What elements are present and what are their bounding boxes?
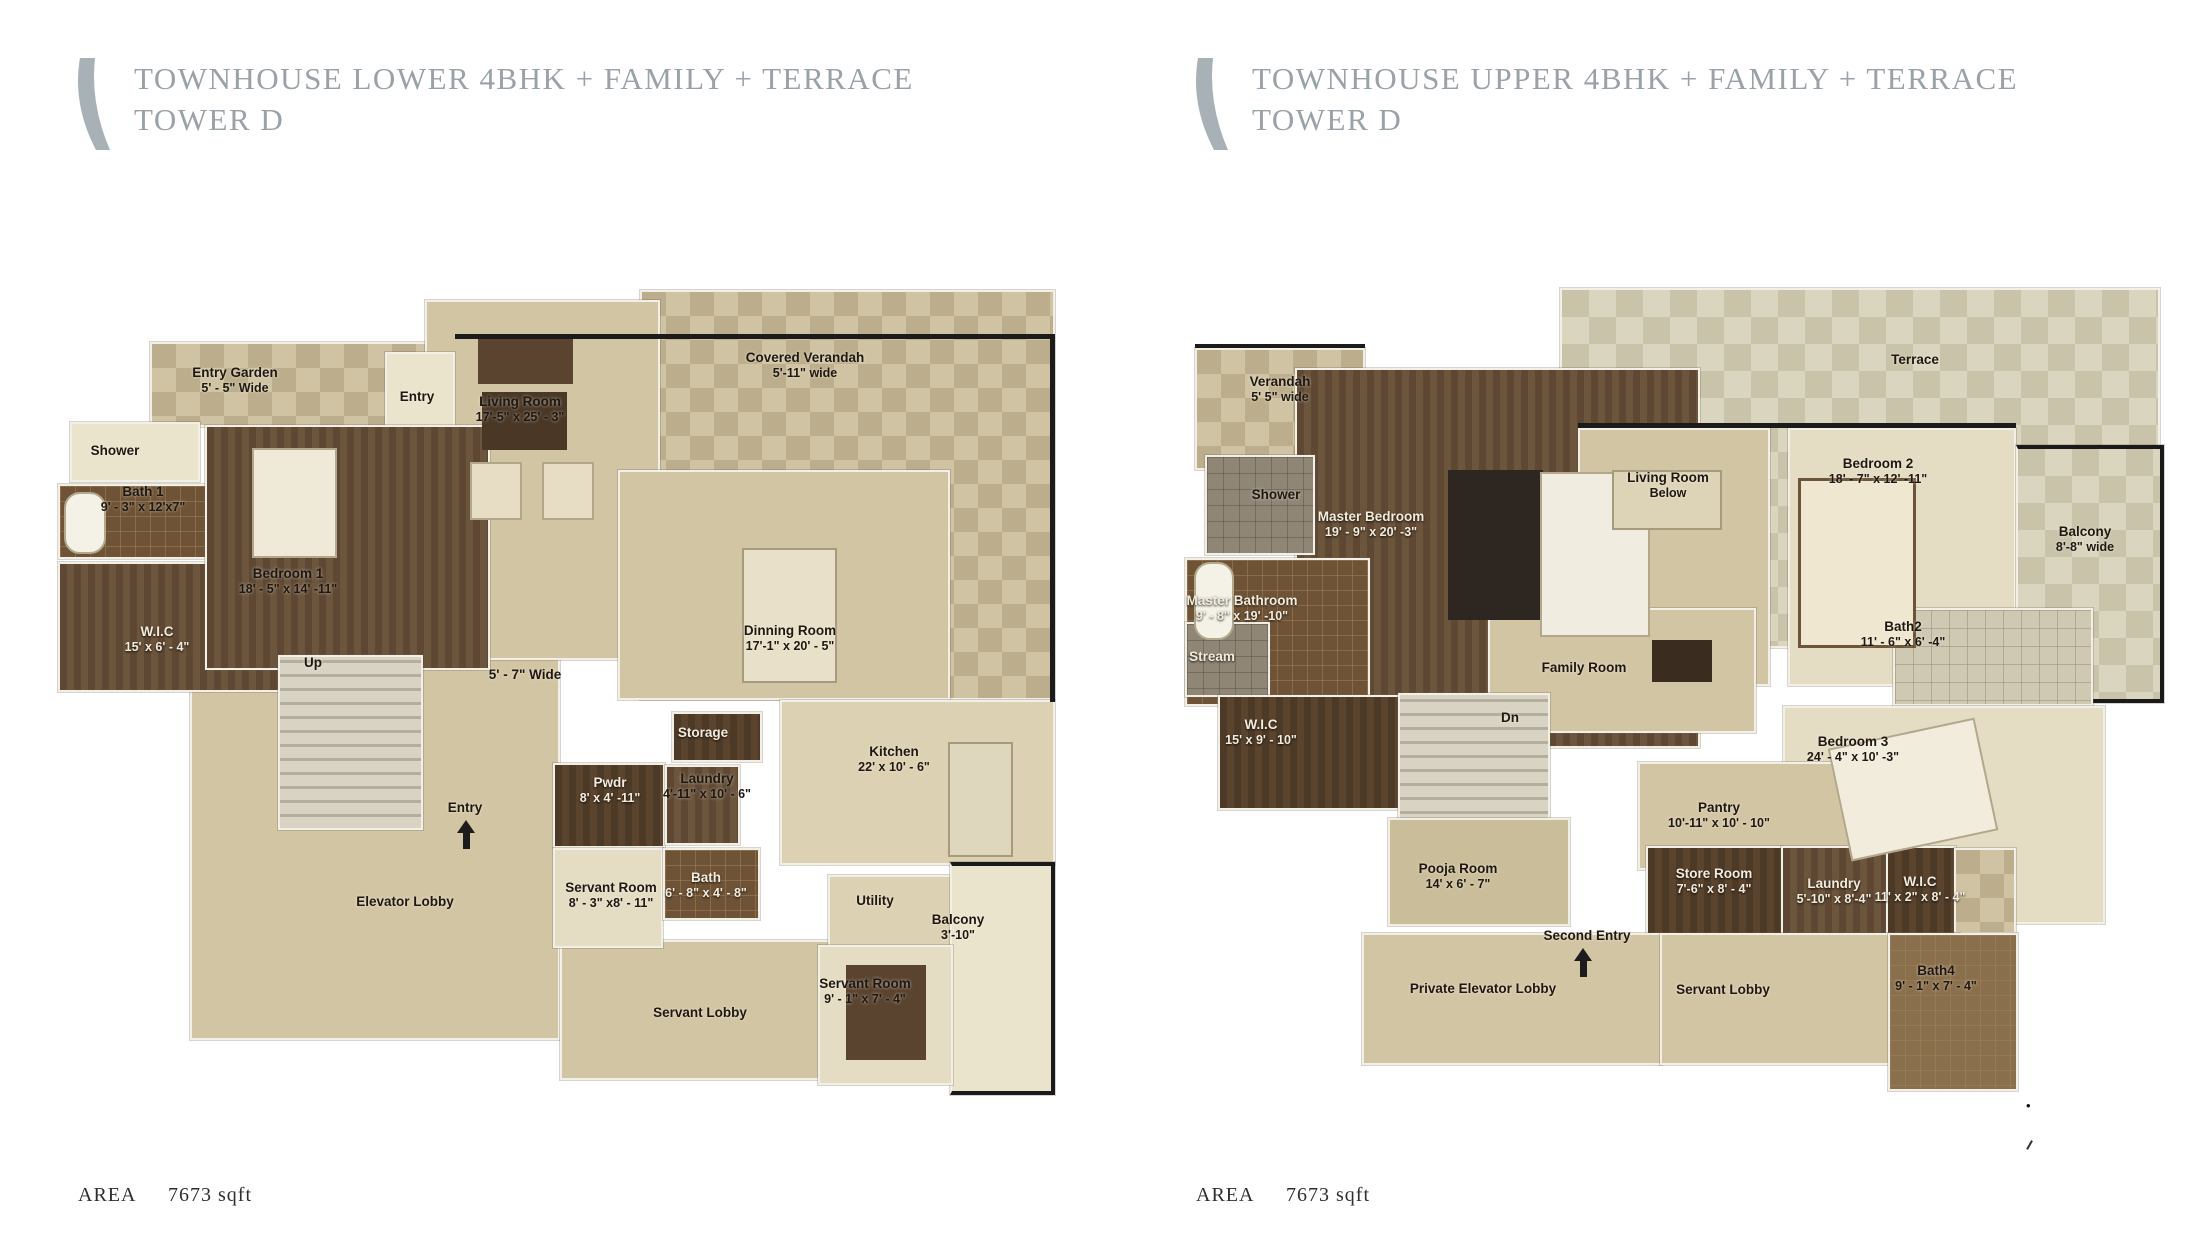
label-entry-top: Entry (400, 389, 435, 405)
label-bedroom3: Bedroom 3 24' - 4" x 10' -3" (1807, 734, 1899, 766)
furniture-bathtub (64, 492, 106, 554)
second-entry-arrow-icon (1574, 948, 1592, 977)
label-dinning: Dinning Room 17'-1" x 20' - 5" (744, 623, 836, 655)
label-servant2: Servant Room 9' - 1" x 7' - 4" (819, 976, 911, 1008)
label-kitchen: Kitchen 22' x 10' - 6" (858, 744, 930, 776)
label-bath1: Bath 1 9' - 3" x 12'x7" (101, 484, 186, 516)
page-artifact-dot: • (2026, 1098, 2031, 1113)
floorplan-upper: Verandah 5' 5" wide Terrace Shower Maste… (0, 0, 2205, 1260)
brochure-page: TOWNHOUSE LOWER 4BHK + FAMILY + TERRACE … (0, 0, 2205, 1260)
label-storage: Storage (678, 725, 728, 741)
label-wic-right: W.I.C 11' x 2" x 8' - 4" (1875, 874, 1966, 906)
wall-segment (1195, 344, 1365, 348)
label-corridor-width: 5' - 7" Wide (489, 667, 562, 683)
label-entry-garden: Entry Garden 5' - 5" Wide (192, 365, 278, 397)
label-bath2: Bath2 11' - 6" x 6' -4" (1861, 619, 1946, 651)
label-balcony-left: Balcony 3'-10" (932, 912, 985, 944)
label-steam: Stream (1189, 649, 1235, 665)
room-private-lobby (1362, 933, 1662, 1065)
room-shower-right (1205, 455, 1315, 555)
label-wic-left: W.I.C 15' x 6' - 4" (125, 624, 190, 656)
label-bedroom2: Bedroom 2 18' - 7" x 12' -11" (1829, 456, 1927, 488)
label-dn: Dn (1501, 710, 1519, 726)
room-bath4 (1888, 933, 2018, 1091)
label-shower-left: Shower (91, 443, 140, 459)
label-wic-master: W.I.C 15' x 9' - 10" (1225, 717, 1297, 749)
furniture-kitchen-island (948, 742, 1013, 857)
wall-segment (1050, 334, 1055, 702)
label-shower-right: Shower (1252, 487, 1301, 503)
label-servant-lobby-left: Servant Lobby (653, 1005, 747, 1021)
label-laundry-left: Laundry 4'-11" x 10' - 6" (663, 771, 751, 803)
label-pantry: Pantry 10'-11" x 10' - 10" (1668, 800, 1770, 832)
label-elevator-lobby: Elevator Lobby (356, 894, 454, 910)
furniture-sofa (478, 338, 573, 384)
label-entry-bottom: Entry (448, 800, 483, 816)
label-bath-left: Bath 6' - 8" x 4' - 8" (665, 870, 747, 902)
label-second-entry: Second Entry (1543, 928, 1630, 944)
furniture-table (1652, 640, 1712, 682)
label-up: Up (304, 655, 322, 671)
area-value: 7673 sqft (168, 1184, 252, 1207)
label-private-lobby: Private Elevator Lobby (1410, 981, 1556, 997)
label-master-bedroom: Master Bedroom 19' - 9" x 20' -3" (1318, 509, 1425, 541)
furniture-armchair (542, 462, 594, 520)
area-row-upper: AREA 7673 sqft (1196, 1184, 1254, 1207)
label-pooja: Pooja Room 14' x 6' - 7" (1419, 861, 1498, 893)
furniture-rug (1448, 470, 1543, 620)
label-balcony-right: Balcony 8'-8" wide (2056, 524, 2114, 556)
label-bedroom1: Bedroom 1 18' - 5" x 14' -11" (239, 566, 337, 598)
label-bath4: Bath4 9' - 1" x 7' - 4" (1895, 963, 1977, 995)
label-living: Living Room 17'-5" x 25' - 3" (476, 394, 565, 426)
label-master-bath: Master Bathroom 9' - 8" x 19' -10" (1186, 593, 1297, 625)
label-laundry-right: Laundry 5'-10" x 8'-4" (1797, 876, 1872, 908)
furniture-dining-table (742, 548, 837, 683)
label-terrace: Terrace (1891, 352, 1939, 368)
label-servant-lobby-right: Servant Lobby (1676, 982, 1770, 998)
wall-segment (1578, 423, 2016, 428)
label-living-below: Living Room Below (1627, 470, 1709, 502)
area-row-lower: AREA 7673 sqft (78, 1184, 136, 1207)
entry-arrow-icon (457, 820, 475, 849)
area-value: 7673 sqft (1286, 1184, 1370, 1207)
label-servant1: Servant Room 8' - 3" x8' - 11" (565, 880, 657, 912)
label-pwdr: Pwdr 8' x 4' -11" (580, 775, 641, 807)
label-covered-verandah: Covered Verandah 5'-11" wide (746, 350, 865, 382)
furniture-bed (252, 448, 337, 558)
label-family: Family Room (1542, 660, 1627, 676)
area-label: AREA (78, 1184, 136, 1206)
label-verandah: Verandah 5' 5" wide (1250, 374, 1311, 406)
label-utility: Utility (856, 893, 894, 909)
label-store: Store Room 7'-6" x 8' - 4" (1676, 866, 1753, 898)
wall-segment (455, 334, 1055, 339)
area-label: AREA (1196, 1184, 1254, 1206)
furniture-armchair (470, 462, 522, 520)
